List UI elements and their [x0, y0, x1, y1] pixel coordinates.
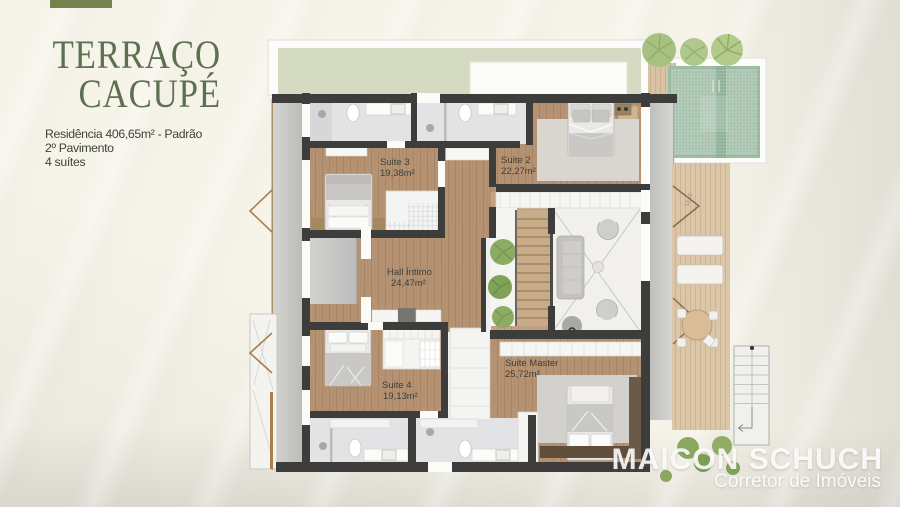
svg-text:24,47m²: 24,47m² [391, 278, 426, 289]
svg-text:19,13m²: 19,13m² [383, 391, 418, 402]
svg-text:25,72m²: 25,72m² [505, 369, 540, 380]
svg-text:Suite 3: Suite 3 [380, 157, 410, 168]
svg-text:Suite Master: Suite Master [505, 358, 558, 369]
svg-text:Hall Íntimo: Hall Íntimo [387, 267, 432, 278]
svg-text:Suite 2: Suite 2 [501, 155, 531, 166]
svg-text:22,27m²: 22,27m² [501, 166, 536, 177]
svg-text:Suite 4: Suite 4 [382, 380, 412, 391]
svg-text:19,38m²: 19,38m² [380, 168, 415, 179]
